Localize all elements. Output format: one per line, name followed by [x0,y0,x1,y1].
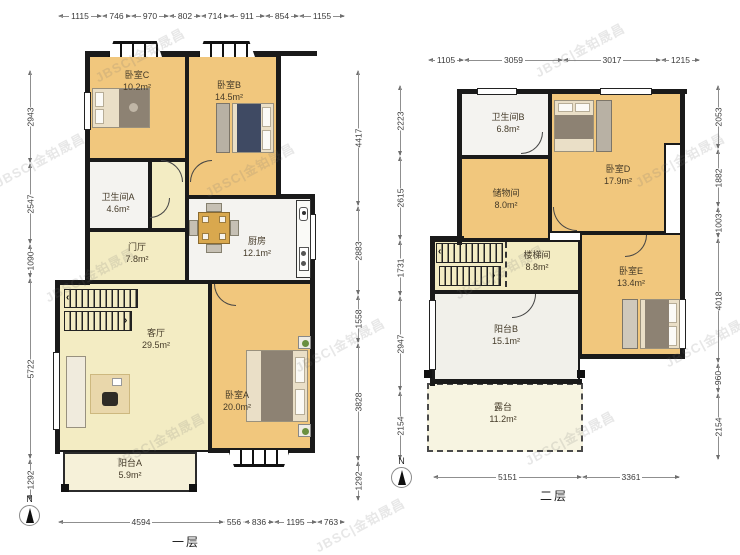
bay-window-icon [228,450,290,467]
dimension: 4018 [712,238,724,363]
dimension: 4594 [58,516,224,528]
room-label-bathroom-a: 卫生间A4.6m² [101,192,134,215]
wardrobe-icon [622,299,638,349]
dimension: 960 [712,363,724,393]
chair-icon [189,220,198,236]
dimension: 1155 [299,10,345,22]
floor1-label: 一层 [172,533,200,550]
room-label-hall: 门厅7.8m² [125,242,148,265]
room-label-storage: 储物间8.0m² [492,188,519,211]
wardrobe-icon [216,103,230,153]
chair-icon [230,220,239,236]
tv-remote-icon [112,378,122,386]
dimension: 2943 [24,70,36,163]
dimension: 1882 [712,149,724,207]
room-label-bedroom-d: 卧室D17.9m² [604,164,632,187]
room-label-bathroom-b: 卫生间B6.8m² [491,112,524,135]
dimension: 2053 [712,85,724,149]
dimension: 2947 [394,296,406,391]
bed-icon [554,100,594,152]
balcony-post [61,484,69,492]
dimension: 2223 [394,85,406,156]
nightstand-icon [298,424,311,437]
window-icon [600,88,652,95]
watermark: JBSC|金铂晟昌 [531,18,628,81]
dimension: 1215 [661,54,700,66]
dimension: 2883 [352,206,364,295]
bed-icon [232,103,274,153]
window-icon [53,352,60,430]
chair-icon [206,244,222,253]
floor2-label: 二层 [540,487,568,504]
dimension: 1115 [58,10,102,22]
dimension: 3059 [464,54,563,66]
compass-n-label: N [26,494,33,504]
stair-landing-dash [505,242,507,287]
dimension: 970 [131,10,169,22]
compass-n-label: N [398,456,405,466]
bed-icon [246,350,308,422]
watermark: JBSC|金铂晟昌 [0,128,88,191]
dimension: 1292 [352,461,364,501]
room-label-bedroom-c: 卧室C10.2m² [123,70,151,93]
dining-table-icon [198,212,230,244]
stair-arrow-icon [124,316,127,326]
wall [276,51,281,199]
floorplan-canvas: 卧室C10.2m² 卧室B14.5m² 卫生间A4.6m² 门厅7.8m² 厨房… [0,0,740,555]
wardrobe-icon [596,100,612,152]
dimension: 1105 [428,54,464,66]
wall [430,236,464,241]
dimension: 5151 [433,471,582,483]
dimension: 763 [317,516,345,528]
room-label-bedroom-b: 卧室B14.5m² [215,80,243,103]
room-label-living: 客厅29.5m² [142,328,170,351]
chair-icon [206,203,222,212]
dimension: 1090 [24,244,36,278]
room-label-bedroom-e: 卧室E13.4m² [617,266,645,289]
window-icon [679,299,686,349]
sofa-icon [66,356,86,428]
window-icon [477,88,517,95]
dimension: 802 [169,10,201,22]
dimension: 3017 [563,54,661,66]
north-compass-icon: N [19,494,40,526]
room-label-terrace: 露台11.2m² [489,402,516,425]
dimension: 1003 [712,207,724,238]
stair-arrow-icon [492,271,495,281]
wall [457,89,462,245]
wall [578,354,685,359]
dimension: 5722 [24,278,36,459]
window-icon [84,92,91,130]
dimension: 3361 [582,471,680,483]
north-compass-icon: N [391,456,412,488]
dimension: 854 [265,10,299,22]
dimension: 911 [229,10,265,22]
dimension: 1731 [394,240,406,296]
terrace-post [424,370,432,378]
balcony-post [189,484,197,492]
dimension: 556 [224,516,244,528]
dimension: 3828 [352,343,364,461]
room-label-bedroom-a: 卧室A20.0m² [223,390,251,413]
coffee-table-icon [102,392,118,406]
wall [430,379,582,384]
bed-icon [640,299,680,349]
room-label-balcony-b: 阳台B15.1m² [492,324,520,347]
room-label-stairwell: 楼梯间8.8m² [523,250,550,273]
nightstand-icon [298,336,311,349]
dimension: 1195 [274,516,317,528]
dimension: 714 [201,10,229,22]
window-icon [429,300,436,370]
stairs-icon [64,311,132,331]
dimension: 2154 [394,391,406,460]
stair-arrow-icon [66,293,69,303]
stair-arrow-icon [438,247,441,257]
wall [278,194,315,199]
room-label-balcony-a: 阳台A5.9m² [118,458,142,481]
room-label-kitchen: 厨房12.1m² [243,236,271,259]
bed-icon [92,88,150,128]
dimension: 2547 [24,163,36,244]
stairs-icon [436,243,503,263]
dimension: 1558 [352,295,364,343]
dimension: 746 [102,10,131,22]
wall [55,280,90,285]
wall [85,51,90,284]
dimension: 4417 [352,70,364,206]
stairs-icon [64,289,138,308]
dimension: 2615 [394,156,406,240]
kitchen-counter-icon [296,200,311,278]
dimension: 2154 [712,393,724,460]
bay-window-icon [198,41,255,57]
dimension: 836 [244,516,274,528]
terrace-post [577,370,585,378]
bay-window-icon [108,41,162,57]
